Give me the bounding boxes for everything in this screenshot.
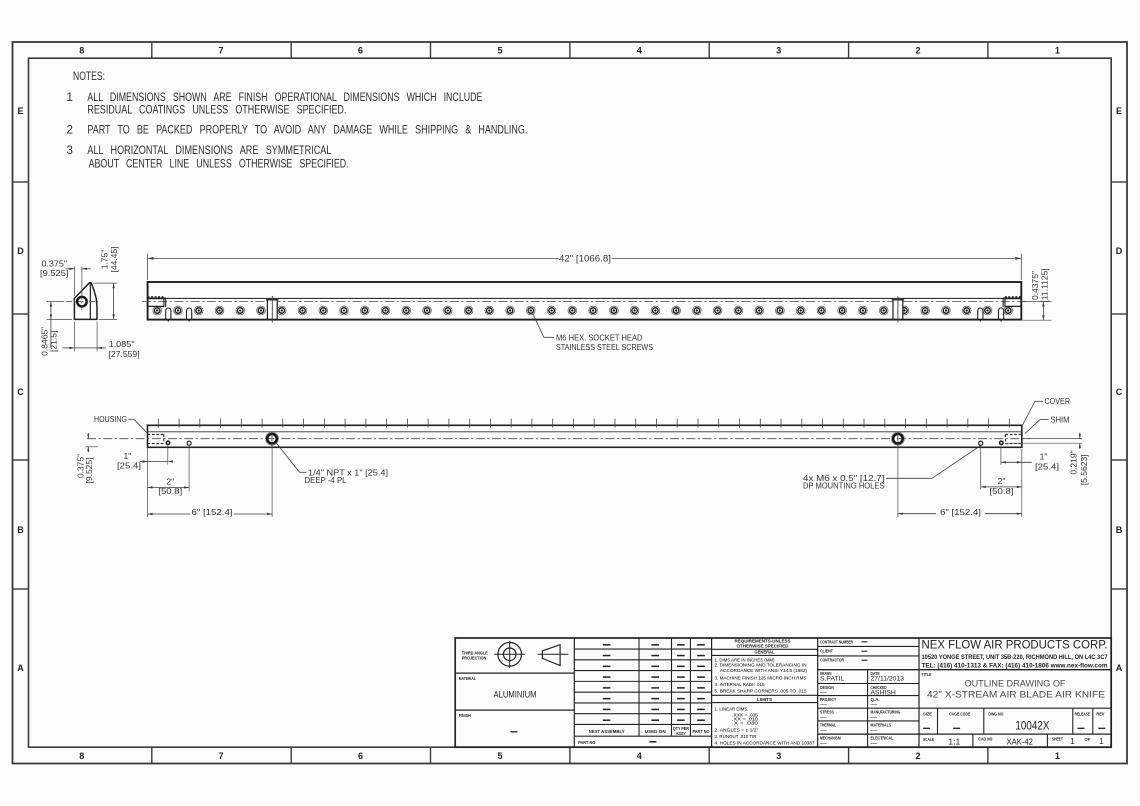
svg-text:—: — xyxy=(820,689,827,696)
svg-text:ACCORDANCE WITH ANSI Y14.5 (19: ACCORDANCE WITH ANSI Y14.5 (1982) xyxy=(720,668,807,673)
svg-text:C: C xyxy=(17,387,24,397)
svg-text:[5.5623]: [5.5623] xyxy=(1079,454,1089,485)
svg-text:CAD NO: CAD NO xyxy=(978,736,993,741)
svg-text:27/11/2013: 27/11/2013 xyxy=(871,676,905,683)
svg-text:D: D xyxy=(17,246,24,256)
svg-text:A: A xyxy=(1116,663,1123,673)
svg-text:PART TO BE PACKED PROPERLY TO: PART TO BE PACKED PROPERLY TO AVOID ANY … xyxy=(87,125,527,137)
svg-text:6: 6 xyxy=(358,751,363,761)
svg-text:DP MOUNTING HOLES: DP MOUNTING HOLES xyxy=(803,482,885,491)
svg-text:SCALE: SCALE xyxy=(923,737,934,742)
svg-text:OUTLINE DRAWING OF: OUTLINE DRAWING OF xyxy=(965,679,1066,690)
svg-text:[9.525]: [9.525] xyxy=(84,458,94,484)
svg-text:1: 1 xyxy=(67,92,73,104)
svg-text:1.085": 1.085" xyxy=(109,339,135,349)
svg-text:ABOUT CENTER LINE UNLESS OTHER: ABOUT CENTER LINE UNLESS OTHERWISE SPECI… xyxy=(89,159,349,171)
svg-text:1. LINEAR DIMS.: 1. LINEAR DIMS. xyxy=(715,706,749,711)
svg-text:6: 6 xyxy=(358,46,363,56)
svg-text:1": 1" xyxy=(1040,451,1048,461)
svg-text:3. MACHINE FINISH 125 MICRO IN: 3. MACHINE FINISH 125 MICRO INCH RMS xyxy=(715,676,807,681)
svg-text:OTHERWISE SPECIFIED: OTHERWISE SPECIFIED xyxy=(737,643,790,648)
svg-text:10520 YONGE STREET, UNIT 35B-2: 10520 YONGE STREET, UNIT 35B-220, RICHMO… xyxy=(922,654,1108,661)
svg-text:[9.525]: [9.525] xyxy=(40,268,69,278)
svg-text:S.PATIL: S.PATIL xyxy=(820,676,845,683)
svg-text:2: 2 xyxy=(67,125,73,137)
svg-text:ASHISH: ASHISH xyxy=(871,689,896,696)
svg-text:4. HOLES IN ACCORDANCE WITH AN: 4. HOLES IN ACCORDANCE WITH AND 10387 xyxy=(715,741,815,746)
svg-text:CONTRACT NUMBER: CONTRACT NUMBER xyxy=(820,639,854,644)
svg-text:—: — xyxy=(820,727,827,734)
svg-text:PART NO: PART NO xyxy=(693,729,711,734)
svg-text:DWG NO: DWG NO xyxy=(988,711,1004,716)
svg-text:5. BREAK SHARP CORNERS .005 TO: 5. BREAK SHARP CORNERS .005 TO .015 xyxy=(715,689,807,694)
svg-text:5: 5 xyxy=(497,46,502,56)
svg-text:USED ON: USED ON xyxy=(645,729,667,734)
svg-text:NEXT ASSEMBLY: NEXT ASSEMBLY xyxy=(589,729,625,734)
svg-text:7: 7 xyxy=(218,46,223,56)
svg-text:—: — xyxy=(871,702,878,709)
svg-text:[27.559]: [27.559] xyxy=(109,349,140,359)
svg-text:1:1: 1:1 xyxy=(948,737,961,746)
svg-text:D: D xyxy=(1116,246,1123,256)
svg-text:PROJECTION: PROJECTION xyxy=(462,656,487,661)
svg-text:[25.4]: [25.4] xyxy=(1035,461,1059,471)
svg-text:B: B xyxy=(17,525,24,535)
svg-text:[50.8]: [50.8] xyxy=(158,486,182,496)
svg-text:OF: OF xyxy=(1085,737,1091,742)
svg-text:2: 2 xyxy=(915,751,920,761)
svg-text:NEX FLOW AIR PRODUCTS CORP.: NEX FLOW AIR PRODUCTS CORP. xyxy=(922,640,1108,652)
svg-text:COVER: COVER xyxy=(1045,397,1071,406)
svg-text:GENERAL: GENERAL xyxy=(755,650,775,655)
svg-text:2: 2 xyxy=(915,46,920,56)
svg-text:B: B xyxy=(1116,525,1123,535)
svg-text:[11.1125]: [11.1125] xyxy=(1039,268,1049,302)
svg-text:4. INTERNAL RADII .015: 4. INTERNAL RADII .015 xyxy=(715,682,765,687)
svg-text:—: — xyxy=(820,740,827,747)
svg-text:3: 3 xyxy=(776,46,781,56)
svg-text:[25.4]: [25.4] xyxy=(117,460,141,470)
svg-text:PART NO: PART NO xyxy=(578,740,595,745)
svg-text:CLIENT: CLIENT xyxy=(820,649,833,654)
svg-text:NOTES:: NOTES: xyxy=(73,71,105,83)
svg-text:0.219": 0.219" xyxy=(1068,450,1078,474)
svg-text:SHEET: SHEET xyxy=(1052,736,1063,741)
svg-text:2": 2" xyxy=(998,476,1006,486)
svg-text:ALL DIMENSIONS SHOWN ARE FINIS: ALL DIMENSIONS SHOWN ARE FINISH OPERATIO… xyxy=(87,92,482,104)
svg-text:—: — xyxy=(820,714,827,721)
svg-text:ASSY: ASSY xyxy=(676,731,686,736)
svg-text:2. ANGLES = ± 1/2°: 2. ANGLES = ± 1/2° xyxy=(715,728,759,733)
svg-text:10042X: 10042X xyxy=(1015,719,1049,733)
svg-text:3. RUNOUT .010 TIR: 3. RUNOUT .010 TIR xyxy=(715,734,758,739)
svg-text:1: 1 xyxy=(1055,751,1060,761)
svg-text:—: — xyxy=(871,727,878,734)
svg-text:42" X-STREAM AIR BLADE AIR KNI: 42" X-STREAM AIR BLADE AIR KNIFE xyxy=(927,690,1105,701)
svg-text:CONTRACTOR: CONTRACTOR xyxy=(820,658,845,663)
svg-text:5: 5 xyxy=(497,751,502,761)
svg-text:RESIDUAL COATINGS UNLESS OTHER: RESIDUAL COATINGS UNLESS OTHERWISE SPECI… xyxy=(87,105,346,117)
svg-text:7: 7 xyxy=(218,751,223,761)
svg-text:XAK-42: XAK-42 xyxy=(1006,738,1033,747)
svg-text:SHIM: SHIM xyxy=(1051,416,1070,425)
svg-text:—: — xyxy=(871,714,878,721)
svg-text:LIMITS: LIMITS xyxy=(757,697,772,702)
svg-text:.X = .030: .X = .030 xyxy=(732,721,759,726)
svg-text:CAGE CODE: CAGE CODE xyxy=(949,711,970,716)
svg-text:—: — xyxy=(820,702,827,709)
svg-text:[50.8]: [50.8] xyxy=(990,486,1014,496)
svg-text:3: 3 xyxy=(776,751,781,761)
svg-text:4: 4 xyxy=(637,751,642,761)
svg-text:8: 8 xyxy=(79,751,84,761)
svg-text:6" [152.4]: 6" [152.4] xyxy=(192,507,233,517)
svg-text:TEL: (416) 410-1313 & FAX: (41: TEL: (416) 410-1313 & FAX: (416) 410-180… xyxy=(922,663,1108,670)
svg-text:STAINLESS STEEL SCREWS: STAINLESS STEEL SCREWS xyxy=(556,343,653,352)
svg-text:ALL HORIZONTAL DIMENSIONS ARE: ALL HORIZONTAL DIMENSIONS ARE SYMMETRICA… xyxy=(87,145,331,157)
svg-text:1: 1 xyxy=(1070,737,1075,746)
svg-text:C: C xyxy=(1116,387,1123,397)
svg-text:1": 1" xyxy=(124,451,132,461)
svg-text:6" [152.4]: 6" [152.4] xyxy=(940,507,981,517)
svg-text:RELEASE: RELEASE xyxy=(1075,711,1091,716)
svg-text:[44.45]: [44.45] xyxy=(109,247,119,273)
svg-text:THIRD ANGLE: THIRD ANGLE xyxy=(462,650,488,655)
svg-text:[21.5]: [21.5] xyxy=(48,331,58,352)
svg-text:—: — xyxy=(871,740,878,747)
svg-text:8: 8 xyxy=(79,46,84,56)
svg-text:2. DIMENSIONING AND TOLERANCIN: 2. DIMENSIONING AND TOLERANCING IN xyxy=(715,663,807,668)
svg-text:4: 4 xyxy=(637,46,642,56)
svg-text:REV: REV xyxy=(1096,711,1104,716)
svg-text:1: 1 xyxy=(1099,737,1104,746)
svg-text:M6 HEX. SOCKET HEAD: M6 HEX. SOCKET HEAD xyxy=(556,333,643,342)
svg-text:SIZE: SIZE xyxy=(923,711,932,716)
svg-text:MATERIAL: MATERIAL xyxy=(459,676,476,681)
svg-text:0.375": 0.375" xyxy=(42,259,68,269)
svg-text:TITLE: TITLE xyxy=(922,672,932,677)
svg-text:E: E xyxy=(1116,106,1122,116)
svg-text:HOUSING: HOUSING xyxy=(94,415,127,424)
svg-text:1: 1 xyxy=(1055,46,1060,56)
svg-text:FINISH: FINISH xyxy=(459,713,472,718)
svg-text:DEEP -4 PL: DEEP -4 PL xyxy=(305,476,348,485)
svg-text:42" [1066.8]: 42" [1066.8] xyxy=(559,253,611,264)
svg-text:E: E xyxy=(17,106,23,116)
svg-text:A: A xyxy=(17,663,24,673)
svg-text:ALUMINIUM: ALUMINIUM xyxy=(494,689,537,699)
svg-text:3: 3 xyxy=(67,145,73,157)
